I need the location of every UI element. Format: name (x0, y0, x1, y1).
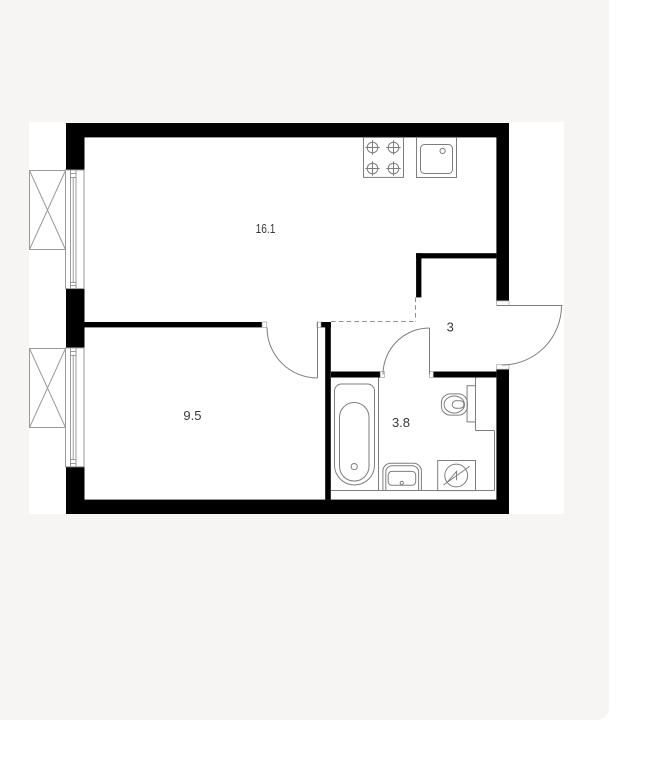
svg-text:16.1: 16.1 (256, 221, 276, 236)
svg-text:9.5: 9.5 (183, 408, 201, 423)
svg-text:3.8: 3.8 (392, 415, 410, 430)
svg-text:3: 3 (447, 320, 454, 335)
